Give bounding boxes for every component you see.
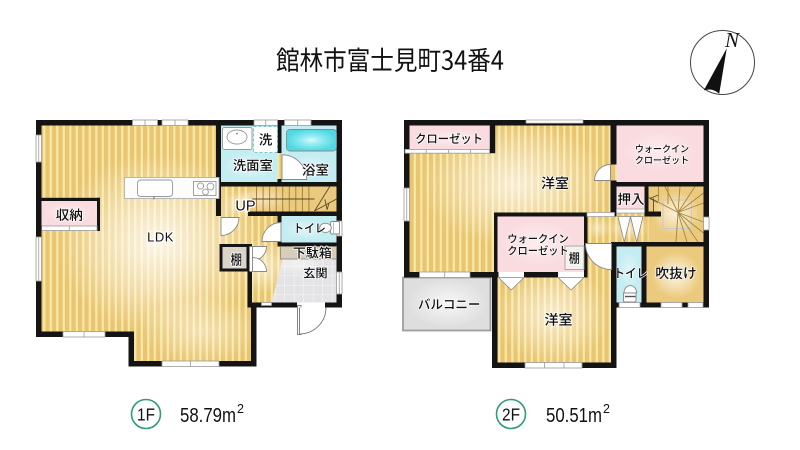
svg-text:LDK: LDK [147, 230, 174, 245]
svg-text:50.51m: 50.51m [546, 404, 602, 427]
svg-text:2F: 2F [502, 405, 520, 425]
svg-text:2: 2 [603, 402, 610, 416]
svg-text:N: N [724, 28, 740, 52]
svg-text:UP: UP [235, 199, 255, 215]
svg-text:58.79m: 58.79m [180, 404, 236, 427]
svg-text:1F: 1F [137, 405, 155, 425]
svg-text:2: 2 [237, 402, 244, 416]
